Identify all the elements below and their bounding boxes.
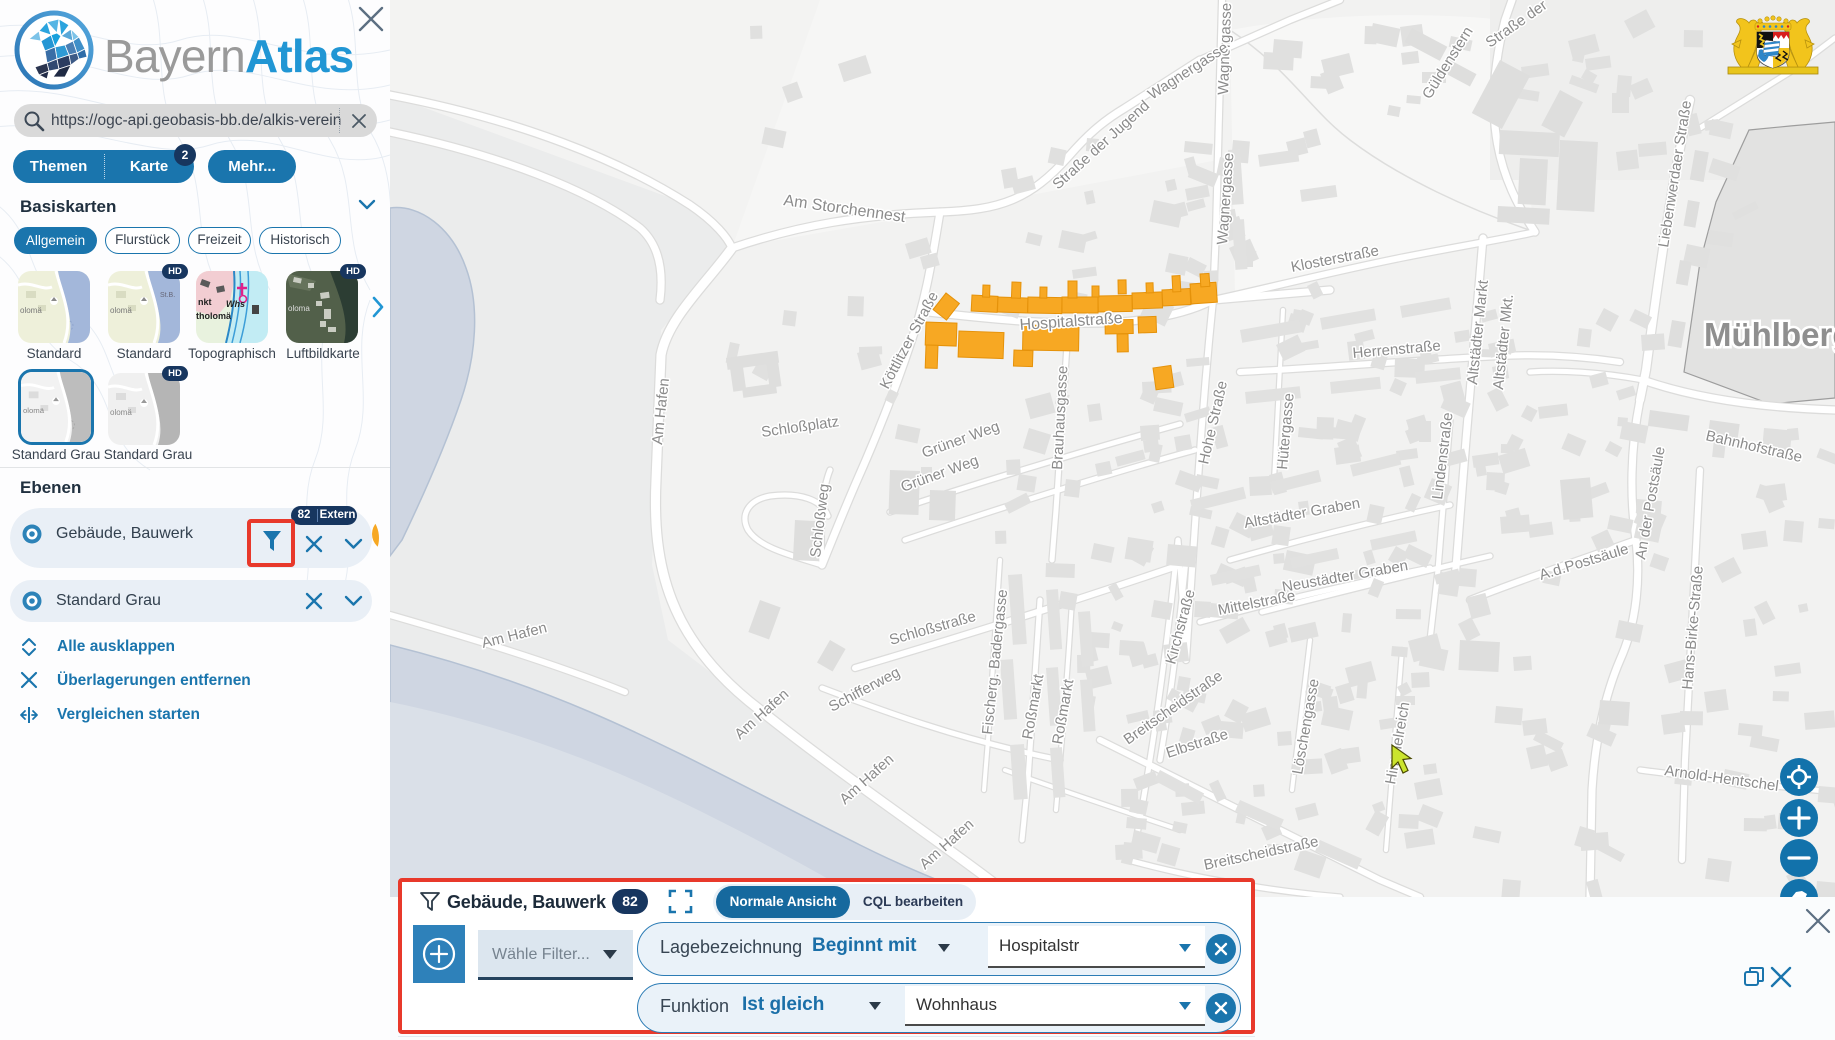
- svg-text:olomä: olomä: [110, 408, 132, 417]
- svg-text:olomä: olomä: [20, 306, 42, 315]
- svg-text:St.B.: St.B.: [160, 292, 175, 299]
- svg-text:olomä: olomä: [23, 406, 45, 415]
- svg-text:nkt: nkt: [198, 297, 212, 307]
- svg-text:tholomä: tholomä: [196, 311, 232, 321]
- svg-text:oloma: oloma: [288, 304, 310, 313]
- svg-text:Mühlberg: Mühlberg: [1704, 316, 1835, 353]
- svg-text:Whs: Whs: [226, 299, 245, 309]
- svg-text:olomä: olomä: [110, 306, 132, 315]
